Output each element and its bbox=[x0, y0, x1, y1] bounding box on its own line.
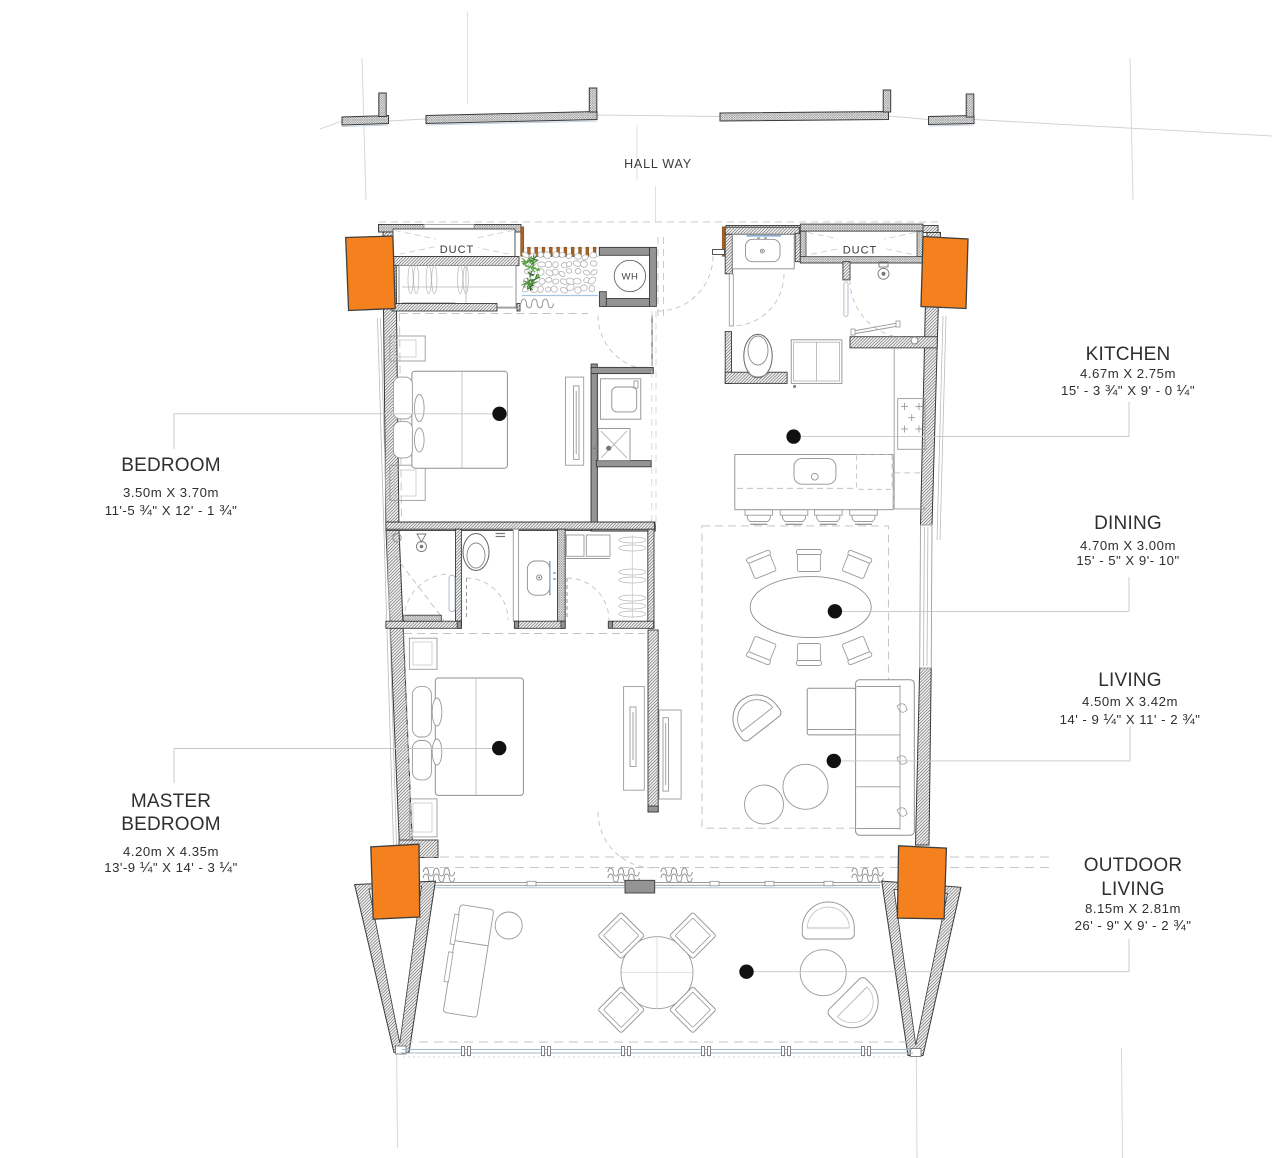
svg-text:8.15m X 2.81m: 8.15m X 2.81m bbox=[1085, 901, 1181, 916]
svg-text:14' - 9 ¼" X 11' - 2 ¾": 14' - 9 ¼" X 11' - 2 ¾" bbox=[1060, 711, 1201, 728]
svg-text:3.50m X 3.70m: 3.50m X 3.70m bbox=[123, 485, 219, 500]
svg-text:WH: WH bbox=[621, 271, 638, 282]
svg-text:15' - 3 ¾" X 9' - 0 ¼": 15' - 3 ¾" X 9' - 0 ¼" bbox=[1061, 382, 1195, 399]
svg-text:13'-9 ¼" X 14' - 3 ¼": 13'-9 ¼" X 14' - 3 ¼" bbox=[104, 859, 238, 876]
svg-text:HALL WAY: HALL WAY bbox=[624, 157, 692, 171]
svg-text:DINING: DINING bbox=[1094, 513, 1162, 534]
svg-text:DUCT: DUCT bbox=[440, 244, 475, 256]
svg-text:DUCT: DUCT bbox=[843, 245, 878, 257]
svg-text:15' - 5" X 9'- 10": 15' - 5" X 9'- 10" bbox=[1076, 553, 1179, 568]
svg-text:4.20m X 4.35m: 4.20m X 4.35m bbox=[123, 844, 219, 859]
svg-text:BEDROOM: BEDROOM bbox=[121, 814, 221, 835]
svg-text:KITCHEN: KITCHEN bbox=[1086, 344, 1171, 365]
svg-text:BEDROOM: BEDROOM bbox=[121, 455, 221, 476]
svg-text:MASTER: MASTER bbox=[131, 791, 211, 812]
svg-text:LIVING: LIVING bbox=[1101, 879, 1165, 900]
svg-text:4.67m X 2.75m: 4.67m X 2.75m bbox=[1080, 366, 1176, 381]
svg-text:4.70m X 3.00m: 4.70m X 3.00m bbox=[1080, 538, 1176, 553]
svg-text:26' - 9" X 9' - 2 ¾": 26' - 9" X 9' - 2 ¾" bbox=[1075, 917, 1192, 934]
svg-text:OUTDOOR: OUTDOOR bbox=[1084, 855, 1183, 876]
svg-text:LIVING: LIVING bbox=[1098, 670, 1162, 691]
svg-text:4.50m X 3.42m: 4.50m X 3.42m bbox=[1082, 694, 1178, 709]
svg-text:11'-5 ¾" X 12' - 1 ¾": 11'-5 ¾" X 12' - 1 ¾" bbox=[105, 502, 238, 519]
